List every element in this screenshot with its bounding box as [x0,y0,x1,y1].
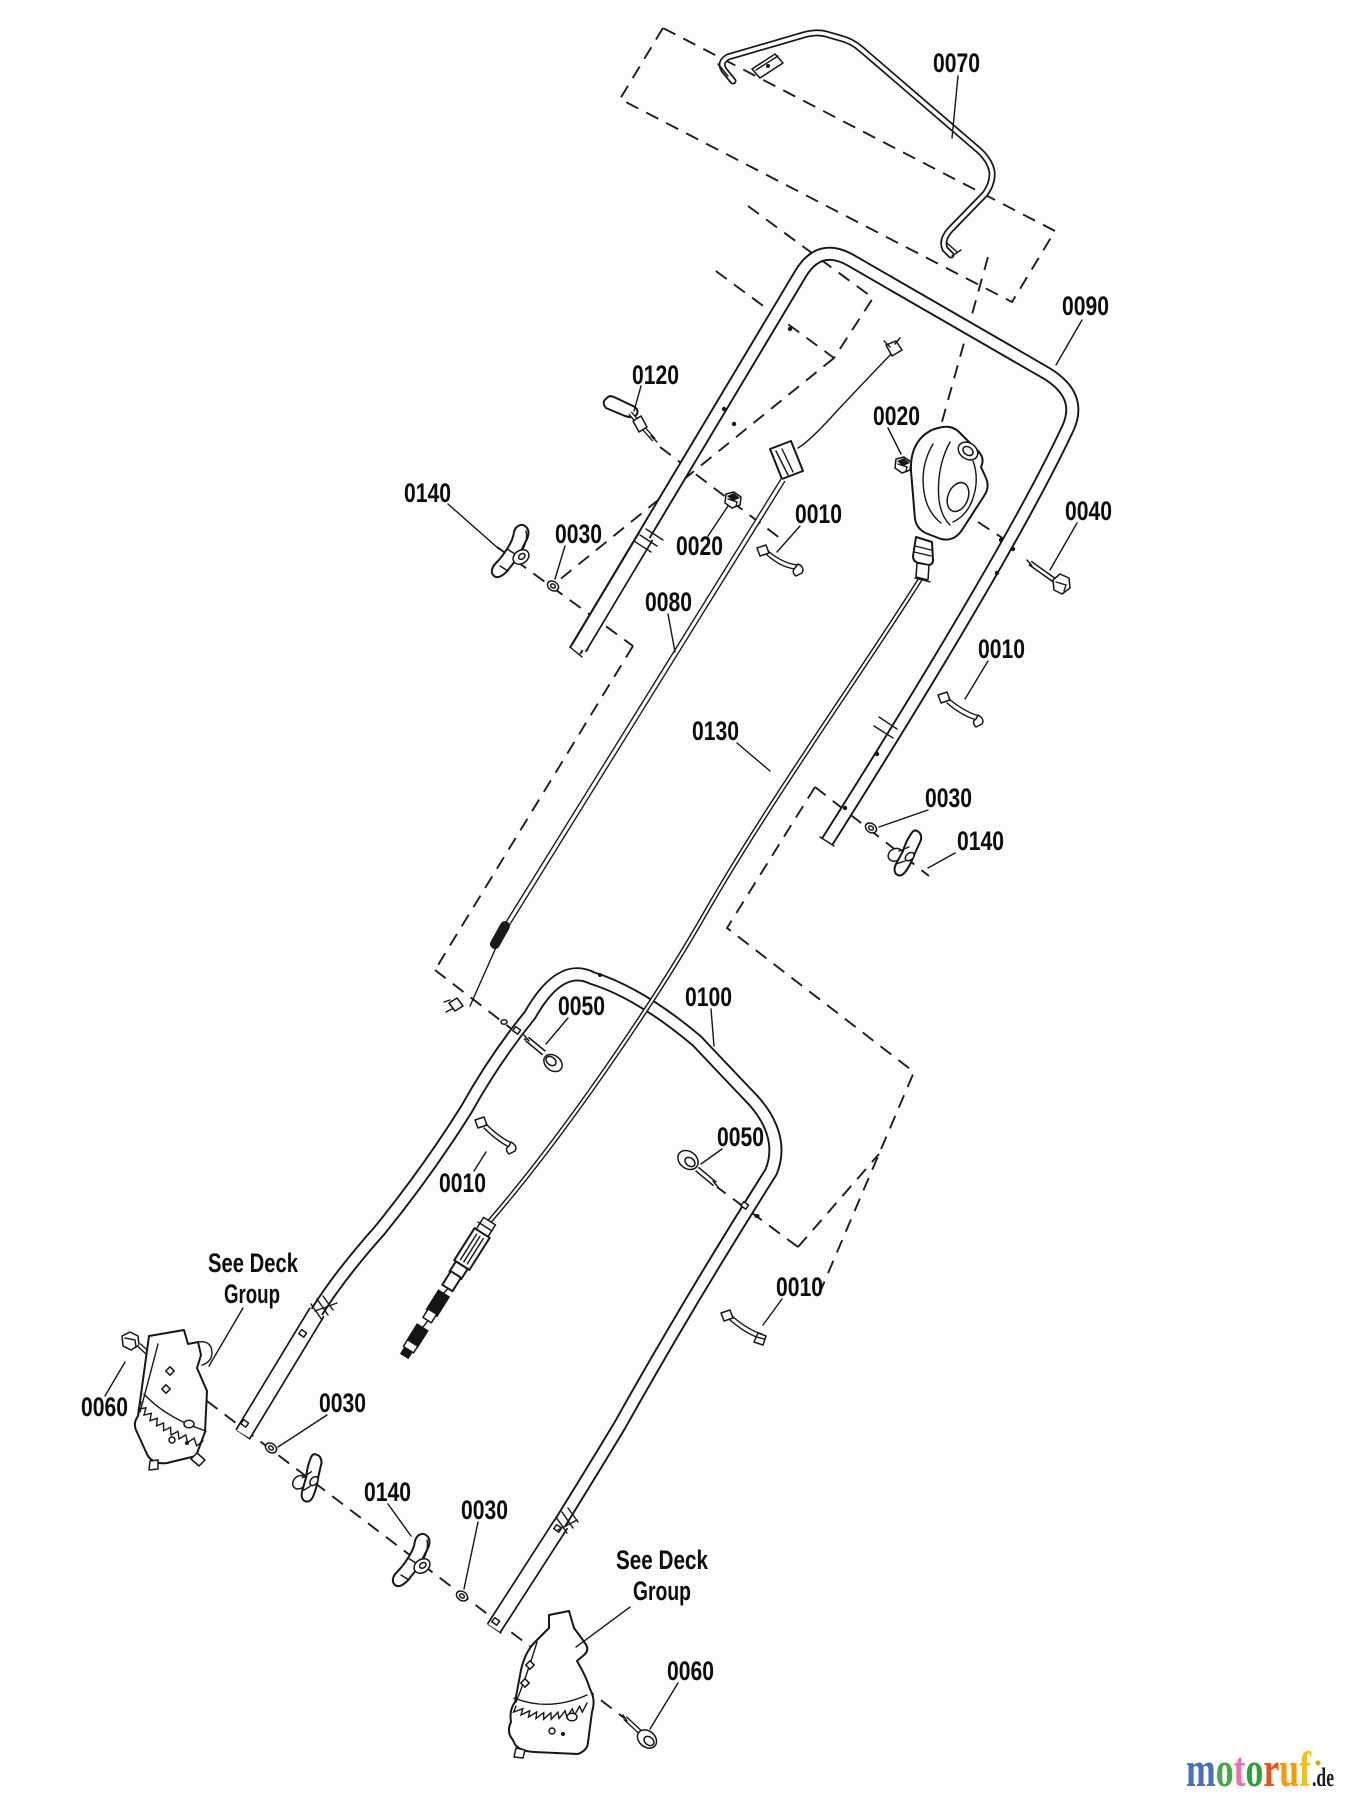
svg-text:0040: 0040 [1065,496,1112,526]
svg-text:0050: 0050 [558,991,605,1021]
svg-text:See Deck: See Deck [208,1248,299,1278]
svg-text:0060: 0060 [81,1392,128,1422]
svg-text:0020: 0020 [676,531,723,561]
svg-text:0030: 0030 [555,519,602,549]
svg-text:0030: 0030 [461,1495,508,1525]
svg-text:0080: 0080 [645,587,692,617]
svg-text:0030: 0030 [925,783,972,813]
svg-text:See Deck: See Deck [616,1545,709,1575]
svg-text:motoruf: motoruf [1186,1741,1312,1797]
svg-text:0100: 0100 [685,982,732,1012]
svg-text:0010: 0010 [795,499,842,529]
svg-text:0050: 0050 [717,1122,764,1152]
svg-text:0140: 0140 [957,826,1004,856]
svg-text:0010: 0010 [776,1272,823,1302]
svg-text:0010: 0010 [978,634,1025,664]
svg-text:0060: 0060 [667,1656,714,1686]
svg-text:0030: 0030 [319,1388,366,1418]
svg-text:0070: 0070 [933,48,980,78]
svg-text:0020: 0020 [873,401,920,431]
svg-text:0140: 0140 [364,1477,411,1507]
svg-text:.de: .de [1312,1763,1334,1792]
svg-text:0130: 0130 [692,716,739,746]
svg-text:0090: 0090 [1062,291,1109,321]
svg-text:0010: 0010 [439,1168,486,1198]
svg-text:Group: Group [633,1576,691,1606]
svg-text:0140: 0140 [404,478,451,508]
svg-text:Group: Group [224,1279,280,1309]
svg-text:0120: 0120 [632,360,679,390]
